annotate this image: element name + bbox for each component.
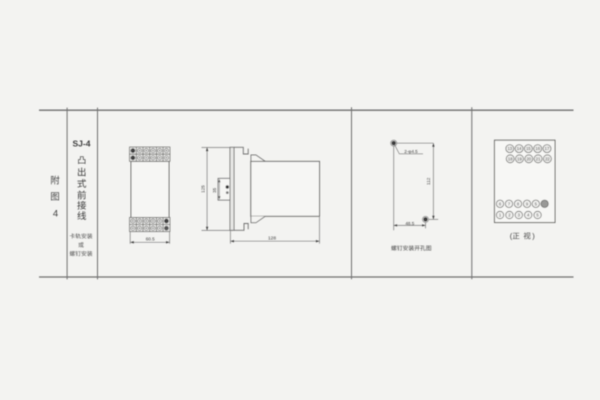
svg-text:17: 17 [545, 146, 550, 151]
svg-text:48.5: 48.5 [405, 221, 414, 226]
svg-text:19: 19 [517, 156, 522, 161]
svg-text:15: 15 [526, 146, 531, 151]
svg-text:22: 22 [545, 156, 550, 161]
svg-text:14: 14 [517, 146, 522, 151]
svg-text:112: 112 [426, 177, 431, 185]
svg-text:125: 125 [200, 185, 205, 193]
svg-text:4: 4 [53, 209, 58, 220]
svg-text:60.5: 60.5 [146, 237, 155, 242]
svg-text:16: 16 [535, 146, 540, 151]
svg-text:21: 21 [536, 156, 541, 161]
svg-text:2-φ4.5: 2-φ4.5 [404, 149, 418, 154]
svg-text:13: 13 [507, 146, 512, 151]
svg-text:128: 128 [268, 236, 276, 242]
svg-text:20: 20 [526, 156, 531, 161]
svg-text:18: 18 [508, 156, 513, 161]
svg-text:SJ-4: SJ-4 [73, 138, 91, 148]
svg-text:35: 35 [212, 187, 217, 192]
